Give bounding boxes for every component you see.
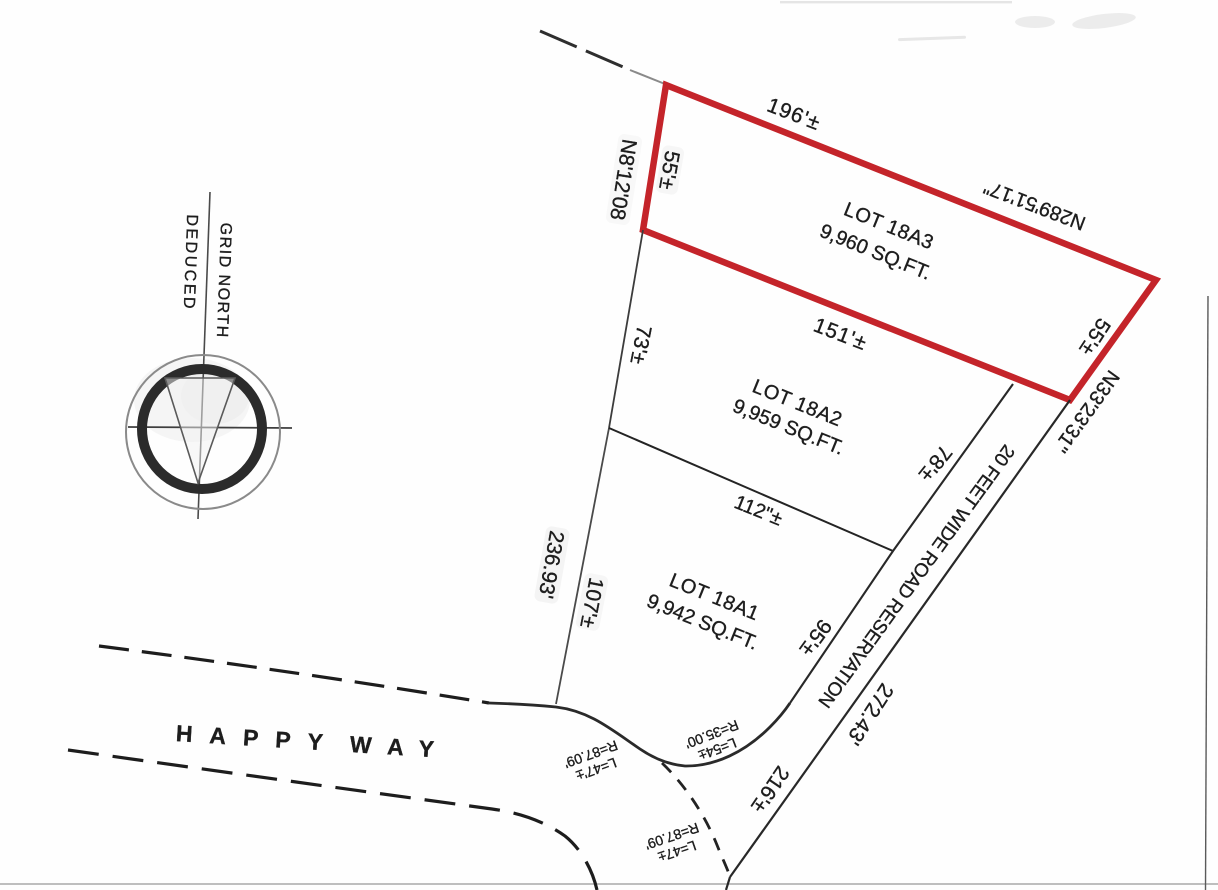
svg-text:DEDUCED: DEDUCED [180,214,200,311]
